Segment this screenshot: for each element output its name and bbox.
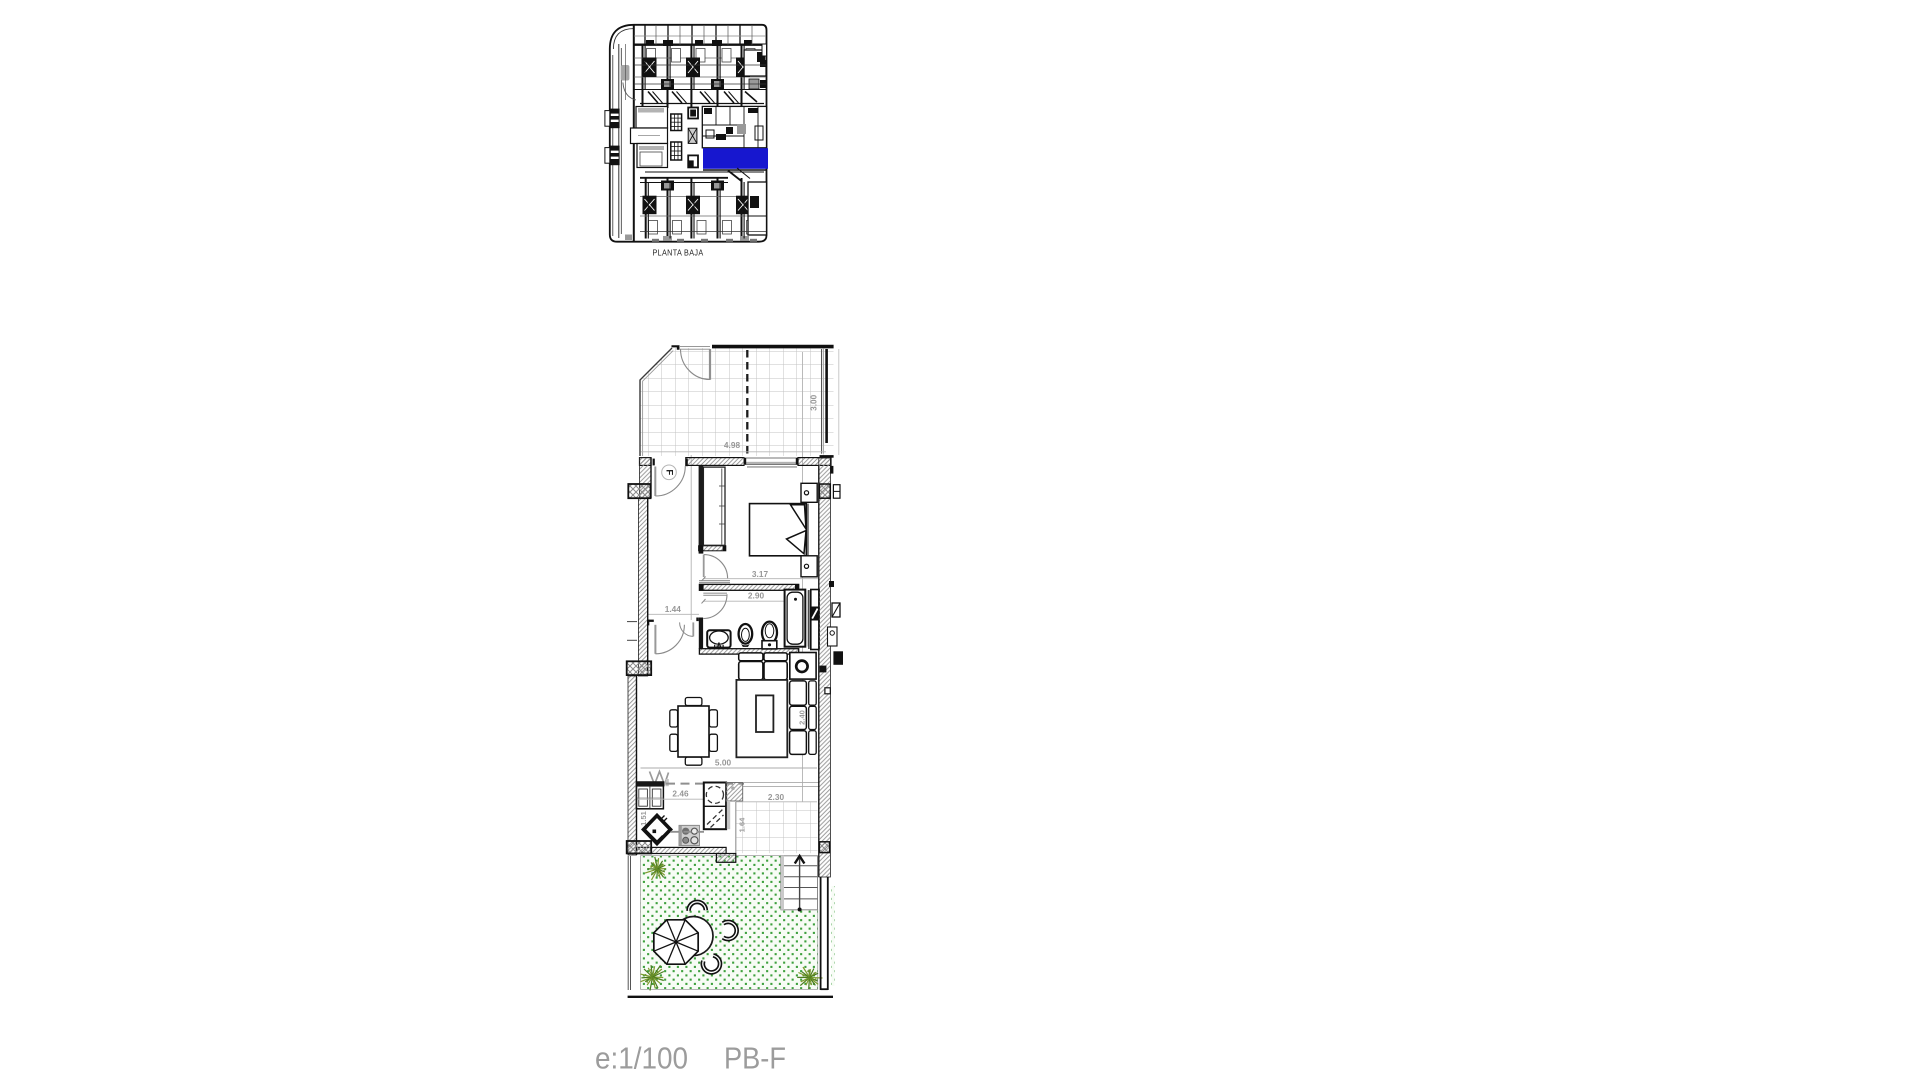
- svg-text:F: F: [664, 469, 675, 475]
- svg-text:1.44: 1.44: [665, 604, 682, 614]
- svg-text:PLANTA BAJA: PLANTA BAJA: [653, 249, 704, 258]
- svg-text:2.46: 2.46: [672, 789, 689, 799]
- svg-text:2.90: 2.90: [748, 590, 765, 600]
- svg-text:5.00: 5.00: [715, 757, 732, 767]
- svg-text:PB-F: PB-F: [724, 1042, 786, 1076]
- svg-text:2.40: 2.40: [798, 710, 807, 725]
- svg-text:1.51: 1.51: [639, 811, 648, 826]
- svg-text:3.00: 3.00: [809, 394, 819, 411]
- svg-text:3.17: 3.17: [752, 569, 769, 579]
- svg-text:e:1/100: e:1/100: [595, 1042, 688, 1076]
- svg-text:4.98: 4.98: [724, 440, 741, 450]
- svg-text:1.64: 1.64: [738, 817, 747, 832]
- svg-text:2.30: 2.30: [768, 792, 785, 802]
